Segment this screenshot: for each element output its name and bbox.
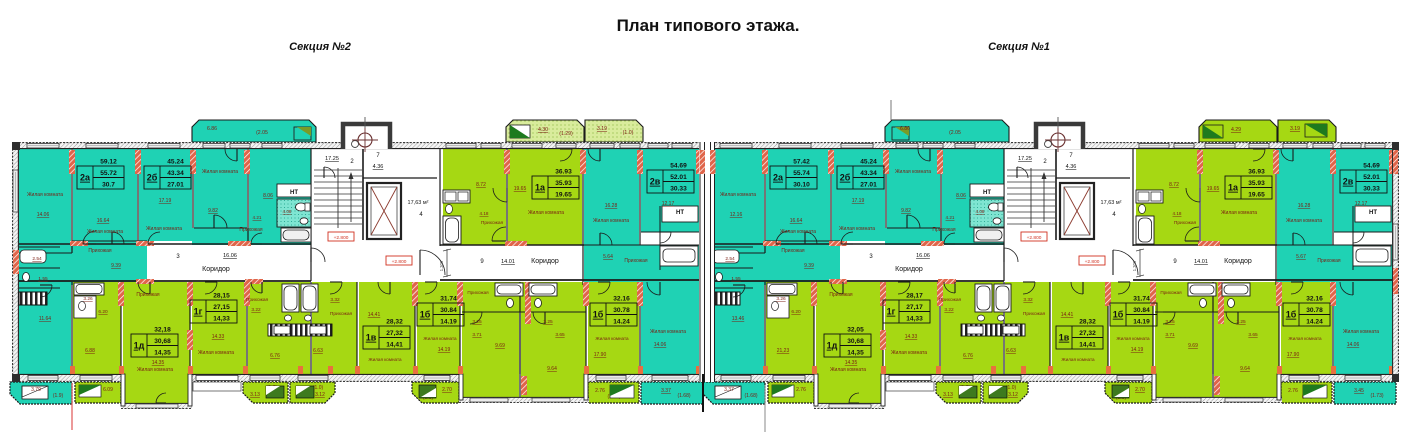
- svg-text:Жилая комната: Жилая комната: [1061, 357, 1095, 362]
- svg-text:14,35: 14,35: [847, 349, 864, 356]
- svg-text:4.30: 4.30: [538, 127, 548, 133]
- svg-text:14.24: 14.24: [613, 318, 630, 325]
- svg-text:3.26: 3.26: [776, 296, 786, 302]
- svg-text:+2.800: +2.800: [334, 235, 349, 241]
- svg-text:19.65: 19.65: [1207, 186, 1220, 192]
- svg-text:16.28: 16.28: [605, 203, 618, 209]
- svg-text:9.39: 9.39: [804, 263, 814, 269]
- svg-text:Жилая комната: Жилая комната: [528, 210, 564, 216]
- svg-text:Прихожая: Прихожая: [330, 311, 353, 317]
- svg-text:30.33: 30.33: [670, 185, 687, 192]
- svg-text:35.93: 35.93: [1248, 180, 1265, 187]
- svg-text:Жилая комната: Жилая комната: [1221, 210, 1257, 216]
- svg-text:45.24: 45.24: [860, 159, 877, 166]
- svg-text:(1.0): (1.0): [1006, 385, 1017, 391]
- svg-text:30.33: 30.33: [1363, 185, 1380, 192]
- svg-text:Жилая комната: Жилая комната: [146, 226, 182, 232]
- svg-text:30.7: 30.7: [102, 181, 115, 188]
- svg-text:16.28: 16.28: [1298, 203, 1311, 209]
- svg-text:2.76: 2.76: [796, 387, 806, 393]
- svg-text:55.74: 55.74: [793, 170, 810, 177]
- svg-text:(1.73): (1.73): [1370, 393, 1383, 399]
- svg-text:Жилая комната: Жилая комната: [891, 350, 927, 356]
- svg-text:6.76: 6.76: [270, 353, 280, 359]
- svg-text:4.08: 4.08: [283, 209, 292, 214]
- svg-text:1б: 1б: [1286, 310, 1297, 320]
- svg-text:Прихожая: Прихожая: [239, 227, 262, 233]
- svg-text:Прихожая: Прихожая: [1160, 290, 1182, 295]
- svg-text:14.19: 14.19: [440, 318, 457, 325]
- svg-text:(1.68): (1.68): [744, 393, 757, 399]
- svg-text:16.64: 16.64: [97, 218, 110, 224]
- svg-text:9.39: 9.39: [111, 263, 121, 269]
- svg-text:Жилая комната: Жилая комната: [423, 336, 457, 341]
- svg-text:35.93: 35.93: [555, 180, 572, 187]
- svg-text:Жилая комната: Жилая комната: [593, 218, 629, 224]
- svg-text:6.88: 6.88: [85, 348, 95, 354]
- svg-text:3.32: 3.32: [1023, 297, 1033, 303]
- svg-text:43.34: 43.34: [167, 170, 184, 177]
- svg-text:4.08: 4.08: [976, 209, 985, 214]
- svg-text:14,41: 14,41: [386, 341, 403, 348]
- svg-text:36.93: 36.93: [555, 169, 572, 176]
- svg-text:31.74: 31.74: [440, 296, 457, 303]
- svg-text:17,63 м²: 17,63 м²: [1101, 200, 1122, 206]
- svg-text:(1.0): (1.0): [313, 385, 324, 391]
- svg-text:4.36: 4.36: [1066, 164, 1077, 170]
- svg-text:НТ: НТ: [1369, 210, 1377, 216]
- svg-text:План типового этажа.: План типового этажа.: [617, 16, 800, 35]
- svg-text:4.18: 4.18: [480, 211, 489, 216]
- svg-text:Жилая комната: Жилая комната: [198, 350, 234, 356]
- svg-text:Прихожая: Прихожая: [781, 248, 804, 254]
- svg-text:1г: 1г: [887, 307, 896, 317]
- svg-text:6.86: 6.86: [207, 126, 217, 132]
- svg-text:НТ: НТ: [676, 210, 684, 216]
- svg-text:27,15: 27,15: [213, 304, 230, 311]
- svg-text:Жилая комната: Жилая комната: [87, 229, 123, 235]
- svg-text:30.10: 30.10: [793, 181, 810, 188]
- svg-text:17.25: 17.25: [325, 156, 339, 162]
- svg-text:54.69: 54.69: [1363, 163, 1380, 170]
- svg-text:2б: 2б: [147, 173, 158, 183]
- svg-text:28,32: 28,32: [386, 319, 403, 326]
- svg-text:Жилая комната: Жилая комната: [1288, 336, 1322, 341]
- svg-text:3.19: 3.19: [597, 126, 607, 132]
- svg-text:13.46: 13.46: [732, 316, 745, 322]
- svg-text:6.20: 6.20: [791, 309, 801, 315]
- svg-text:14.01: 14.01: [501, 259, 515, 265]
- svg-text:Прихожая: Прихожая: [136, 292, 159, 298]
- svg-text:Жилая комната: Жилая комната: [27, 192, 63, 198]
- svg-text:Секция №2: Секция №2: [289, 41, 351, 53]
- svg-text:16.64: 16.64: [790, 218, 803, 224]
- svg-text:1д: 1д: [827, 341, 838, 351]
- svg-text:27,32: 27,32: [1079, 330, 1096, 337]
- svg-text:4.21: 4.21: [253, 215, 262, 220]
- svg-text:2.76: 2.76: [595, 388, 605, 394]
- svg-text:14.01: 14.01: [1194, 259, 1208, 265]
- svg-text:14.19: 14.19: [438, 347, 451, 353]
- svg-text:6.76: 6.76: [963, 353, 973, 359]
- svg-text:Прихожая: Прихожая: [1174, 220, 1197, 226]
- svg-text:12.17: 12.17: [662, 201, 675, 207]
- svg-text:14.33: 14.33: [905, 334, 918, 340]
- svg-text:Коридор: Коридор: [895, 266, 923, 273]
- svg-text:2в: 2в: [650, 177, 661, 187]
- svg-text:Жилая комната: Жилая комната: [202, 169, 238, 175]
- svg-text:27,32: 27,32: [386, 330, 403, 337]
- svg-text:5.64: 5.64: [603, 254, 613, 260]
- svg-text:3.25: 3.25: [543, 319, 553, 325]
- svg-text:52.01: 52.01: [670, 174, 687, 181]
- svg-text:4.36: 4.36: [373, 164, 384, 170]
- svg-text:4.21: 4.21: [946, 215, 955, 220]
- svg-text:2.54: 2.54: [32, 256, 42, 262]
- svg-text:4.18: 4.18: [1173, 211, 1182, 216]
- svg-text:14,33: 14,33: [906, 315, 923, 322]
- svg-text:3.65: 3.65: [555, 332, 565, 338]
- svg-text:28,32: 28,32: [1079, 319, 1096, 326]
- svg-text:32.16: 32.16: [613, 296, 630, 303]
- svg-text:54.69: 54.69: [670, 163, 687, 170]
- svg-text:Коридор: Коридор: [1224, 258, 1252, 265]
- svg-text:Жилая комната: Жилая комната: [595, 336, 629, 341]
- svg-text:3.25: 3.25: [1236, 319, 1246, 325]
- svg-text:НТ: НТ: [290, 190, 298, 196]
- svg-text:55.72: 55.72: [100, 170, 117, 177]
- svg-text:32,05: 32,05: [847, 327, 864, 334]
- svg-text:14.35: 14.35: [845, 360, 858, 366]
- svg-text:4.29: 4.29: [1231, 127, 1241, 133]
- svg-text:+2.800: +2.800: [1085, 259, 1100, 265]
- svg-text:3.25: 3.25: [1165, 319, 1175, 325]
- svg-text:14,41: 14,41: [368, 312, 381, 318]
- svg-text:Жилая комната: Жилая комната: [830, 367, 866, 373]
- svg-text:32,18: 32,18: [154, 327, 171, 334]
- svg-text:(2.05: (2.05: [256, 130, 268, 136]
- svg-text:3.22: 3.22: [251, 307, 261, 313]
- svg-text:6.63: 6.63: [313, 348, 323, 354]
- svg-text:2а: 2а: [80, 173, 91, 183]
- svg-text:3.19: 3.19: [1290, 126, 1300, 132]
- svg-text:12.16: 12.16: [730, 212, 743, 218]
- svg-text:Жилая комната: Жилая комната: [368, 357, 402, 362]
- svg-text:(1.68): (1.68): [677, 393, 690, 399]
- svg-text:36.93: 36.93: [1248, 169, 1265, 176]
- svg-text:2а: 2а: [773, 173, 784, 183]
- svg-text:14.33: 14.33: [212, 334, 225, 340]
- svg-text:3.12: 3.12: [1008, 392, 1018, 398]
- svg-text:1в: 1в: [366, 333, 377, 343]
- svg-text:9.69: 9.69: [495, 343, 505, 349]
- svg-text:1б: 1б: [1113, 310, 1124, 320]
- svg-text:8.72: 8.72: [476, 182, 486, 188]
- svg-text:+2.800: +2.800: [392, 259, 407, 265]
- svg-text:9.64: 9.64: [547, 366, 557, 372]
- svg-text:(1.29): (1.29): [559, 131, 573, 137]
- svg-text:19.65: 19.65: [514, 186, 527, 192]
- svg-text:17.19: 17.19: [159, 198, 172, 204]
- svg-text:Коридор: Коридор: [531, 258, 559, 265]
- svg-text:1.300: 1.300: [439, 260, 444, 271]
- svg-text:2.76: 2.76: [1288, 388, 1298, 394]
- svg-text:27.01: 27.01: [167, 181, 184, 188]
- svg-text:2.70: 2.70: [442, 387, 452, 393]
- svg-text:30.78: 30.78: [613, 307, 630, 314]
- svg-text:6.20: 6.20: [98, 309, 108, 315]
- svg-text:9.64: 9.64: [1240, 366, 1250, 372]
- svg-text:1а: 1а: [535, 183, 546, 193]
- svg-text:Жилая комната: Жилая комната: [1343, 329, 1379, 335]
- svg-text:12.17: 12.17: [1355, 201, 1368, 207]
- svg-text:6.63: 6.63: [1006, 348, 1016, 354]
- svg-text:14.19: 14.19: [1133, 318, 1150, 325]
- svg-text:2в: 2в: [1343, 177, 1354, 187]
- svg-text:17.90: 17.90: [1287, 352, 1300, 358]
- svg-text:1а: 1а: [1228, 183, 1239, 193]
- svg-text:Жилая комната: Жилая комната: [1116, 336, 1150, 341]
- svg-text:45.24: 45.24: [167, 159, 184, 166]
- svg-text:Прихожая: Прихожая: [88, 248, 111, 254]
- svg-text:57.42: 57.42: [793, 159, 810, 166]
- svg-text:16.06: 16.06: [916, 253, 930, 259]
- svg-text:Коридор: Коридор: [202, 266, 230, 273]
- svg-text:5.67: 5.67: [1296, 254, 1306, 260]
- svg-text:(1.0): (1.0): [623, 130, 634, 136]
- svg-text:1б: 1б: [593, 310, 604, 320]
- svg-text:3.37: 3.37: [661, 388, 671, 394]
- svg-text:1.55: 1.55: [731, 276, 741, 282]
- svg-text:30,68: 30,68: [847, 338, 864, 345]
- svg-text:9.82: 9.82: [208, 208, 218, 214]
- svg-text:Прихожая: Прихожая: [624, 258, 647, 264]
- svg-text:Прихожая: Прихожая: [1317, 258, 1340, 264]
- svg-text:3.37: 3.37: [724, 387, 734, 393]
- svg-text:3.22: 3.22: [944, 307, 954, 313]
- svg-text:Прихожая: Прихожая: [467, 290, 489, 295]
- svg-text:(2.05: (2.05: [949, 130, 961, 136]
- svg-text:17.90: 17.90: [594, 352, 607, 358]
- svg-text:1в: 1в: [1059, 333, 1070, 343]
- svg-text:30.84: 30.84: [1133, 307, 1150, 314]
- svg-text:2.70: 2.70: [1135, 387, 1145, 393]
- svg-text:3.65: 3.65: [1248, 332, 1258, 338]
- svg-text:Секция №1: Секция №1: [988, 41, 1050, 53]
- svg-text:Прихожая: Прихожая: [246, 297, 269, 303]
- svg-text:16.06: 16.06: [223, 253, 237, 259]
- svg-text:14.24: 14.24: [1306, 318, 1323, 325]
- svg-text:14,33: 14,33: [213, 315, 230, 322]
- svg-text:1б: 1б: [420, 310, 431, 320]
- svg-text:(1.9): (1.9): [53, 393, 64, 399]
- svg-text:3.13: 3.13: [250, 392, 260, 398]
- svg-text:3.71: 3.71: [1165, 332, 1175, 338]
- svg-text:6.86: 6.86: [900, 126, 910, 132]
- svg-text:+2.800: +2.800: [1027, 235, 1042, 241]
- svg-text:Жилая комната: Жилая комната: [839, 226, 875, 232]
- svg-text:Прихожая: Прихожая: [829, 292, 852, 298]
- svg-text:3.71: 3.71: [472, 332, 482, 338]
- svg-text:28,15: 28,15: [213, 293, 230, 300]
- svg-text:1.300: 1.300: [1132, 260, 1137, 271]
- svg-text:Жилая комната: Жилая комната: [780, 229, 816, 235]
- svg-text:43.34: 43.34: [860, 170, 877, 177]
- svg-text:Жилая комната: Жилая комната: [137, 367, 173, 373]
- svg-text:11.64: 11.64: [39, 316, 51, 322]
- svg-text:17.19: 17.19: [852, 198, 865, 204]
- svg-text:14,41: 14,41: [1061, 312, 1074, 318]
- svg-text:Прихожая: Прихожая: [932, 227, 955, 233]
- svg-text:14.06: 14.06: [1347, 342, 1360, 348]
- svg-text:9.69: 9.69: [1188, 343, 1198, 349]
- svg-text:Жилая комната: Жилая комната: [1286, 218, 1322, 224]
- svg-text:19.65: 19.65: [1248, 191, 1265, 198]
- svg-text:1д: 1д: [134, 341, 145, 351]
- svg-text:59.12: 59.12: [100, 159, 117, 166]
- svg-text:14,35: 14,35: [154, 349, 171, 356]
- svg-text:14.35: 14.35: [152, 360, 165, 366]
- svg-text:3.45: 3.45: [1354, 388, 1364, 394]
- svg-text:8.06: 8.06: [956, 193, 966, 199]
- svg-text:17,63 м²: 17,63 м²: [408, 200, 429, 206]
- svg-text:27.01: 27.01: [860, 181, 877, 188]
- svg-text:3.32: 3.32: [330, 297, 340, 303]
- svg-text:31.74: 31.74: [1133, 296, 1150, 303]
- svg-text:21,23: 21,23: [777, 348, 790, 354]
- svg-text:8.06: 8.06: [263, 193, 273, 199]
- svg-text:17.25: 17.25: [1018, 156, 1032, 162]
- svg-text:30.78: 30.78: [1306, 307, 1323, 314]
- svg-text:Жилая комната: Жилая комната: [720, 192, 756, 198]
- svg-text:14.19: 14.19: [1131, 347, 1144, 353]
- svg-text:27,17: 27,17: [906, 304, 923, 311]
- svg-text:2б: 2б: [840, 173, 851, 183]
- svg-text:52.01: 52.01: [1363, 174, 1380, 181]
- svg-text:3.25: 3.25: [472, 319, 482, 325]
- svg-text:19.65: 19.65: [555, 191, 572, 198]
- svg-text:14.06: 14.06: [654, 342, 667, 348]
- svg-text:3.12: 3.12: [315, 392, 325, 398]
- svg-text:30.84: 30.84: [440, 307, 457, 314]
- svg-text:2.54: 2.54: [725, 256, 735, 262]
- svg-text:Жилая комната: Жилая комната: [895, 169, 931, 175]
- svg-text:9.82: 9.82: [901, 208, 911, 214]
- svg-text:НТ: НТ: [983, 190, 991, 196]
- svg-text:Жилая комната: Жилая комната: [650, 329, 686, 335]
- svg-text:1г: 1г: [194, 307, 203, 317]
- svg-text:3.79: 3.79: [31, 387, 41, 393]
- svg-text:30,68: 30,68: [154, 338, 171, 345]
- svg-text:3.13: 3.13: [943, 392, 953, 398]
- svg-text:Прихожая: Прихожая: [939, 297, 962, 303]
- svg-text:28,17: 28,17: [906, 293, 923, 300]
- svg-text:14,41: 14,41: [1079, 341, 1096, 348]
- svg-text:3.26: 3.26: [83, 296, 93, 302]
- svg-text:6.09: 6.09: [103, 387, 113, 393]
- svg-text:8.72: 8.72: [1169, 182, 1179, 188]
- svg-text:14.06: 14.06: [37, 212, 50, 218]
- svg-text:32.16: 32.16: [1306, 296, 1323, 303]
- svg-text:Прихожая: Прихожая: [1023, 311, 1046, 317]
- svg-text:1.55: 1.55: [38, 276, 48, 282]
- svg-text:Прихожая: Прихожая: [481, 220, 504, 226]
